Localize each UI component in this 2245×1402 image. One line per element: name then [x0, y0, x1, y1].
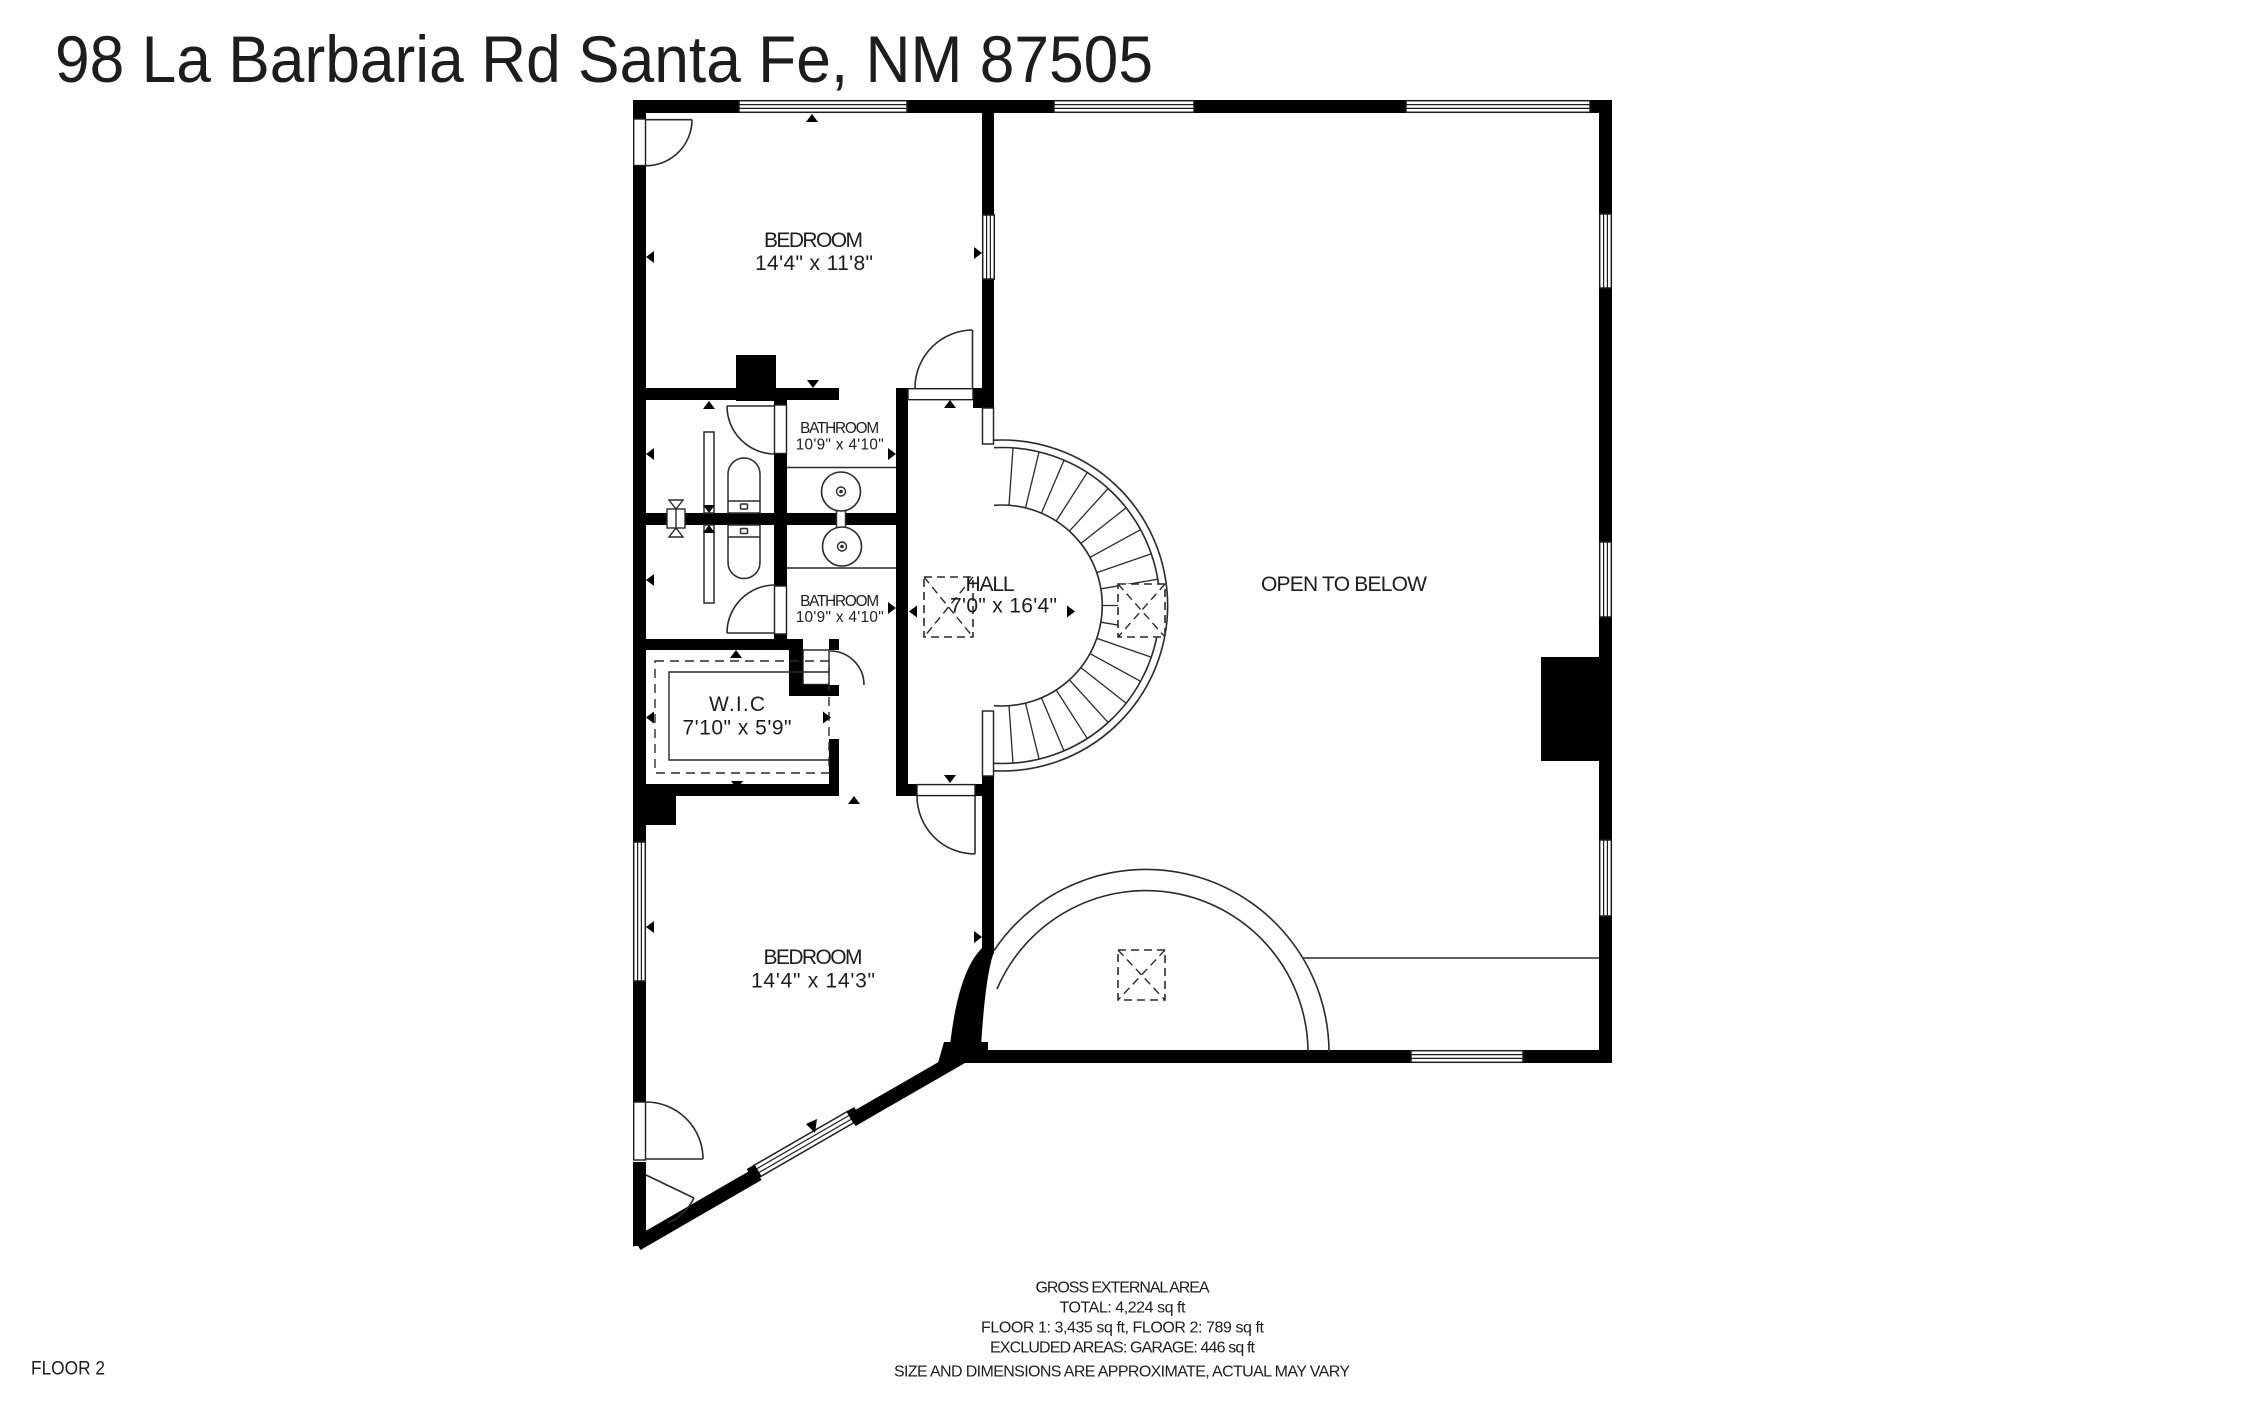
svg-text:14'4" x 11'8": 14'4" x 11'8" — [755, 252, 873, 275]
svg-text:7'0" x 16'4": 7'0" x 16'4" — [950, 595, 1057, 618]
svg-text:98 La Barbaria Rd Santa Fe, NM: 98 La Barbaria Rd Santa Fe, NM 87505 — [55, 22, 1153, 96]
svg-text:GROSS EXTERNAL AREA: GROSS EXTERNAL AREA — [1036, 1280, 1210, 1297]
svg-text:SIZE AND DIMENSIONS ARE APPROX: SIZE AND DIMENSIONS ARE APPROXIMATE, ACT… — [894, 1364, 1350, 1381]
svg-text:EXCLUDED AREAS: GARAGE: 446 sq: EXCLUDED AREAS: GARAGE: 446 sq ft — [990, 1340, 1256, 1357]
svg-text:W.I.C: W.I.C — [709, 693, 765, 716]
svg-text:10'9" x 4'10": 10'9" x 4'10" — [796, 437, 884, 454]
svg-text:HALL: HALL — [966, 573, 1015, 596]
svg-text:FLOOR 1: 3,435 sq ft, FLOOR 2:: FLOOR 1: 3,435 sq ft, FLOOR 2: 789 sq ft — [981, 1320, 1265, 1337]
svg-text:BATHROOM: BATHROOM — [800, 420, 879, 437]
svg-text:FLOOR 2: FLOOR 2 — [31, 1358, 105, 1380]
svg-text:BATHROOM: BATHROOM — [800, 593, 879, 610]
svg-text:10'9" x 4'10": 10'9" x 4'10" — [796, 609, 884, 626]
svg-text:14'4" x 14'3": 14'4" x 14'3" — [751, 970, 875, 993]
svg-text:7'10" x 5'9": 7'10" x 5'9" — [683, 717, 792, 740]
svg-text:BEDROOM: BEDROOM — [764, 946, 863, 969]
svg-text:OPEN TO BELOW: OPEN TO BELOW — [1261, 573, 1427, 596]
svg-text:BEDROOM: BEDROOM — [764, 229, 863, 252]
svg-text:TOTAL: 4,224 sq ft: TOTAL: 4,224 sq ft — [1060, 1300, 1187, 1317]
